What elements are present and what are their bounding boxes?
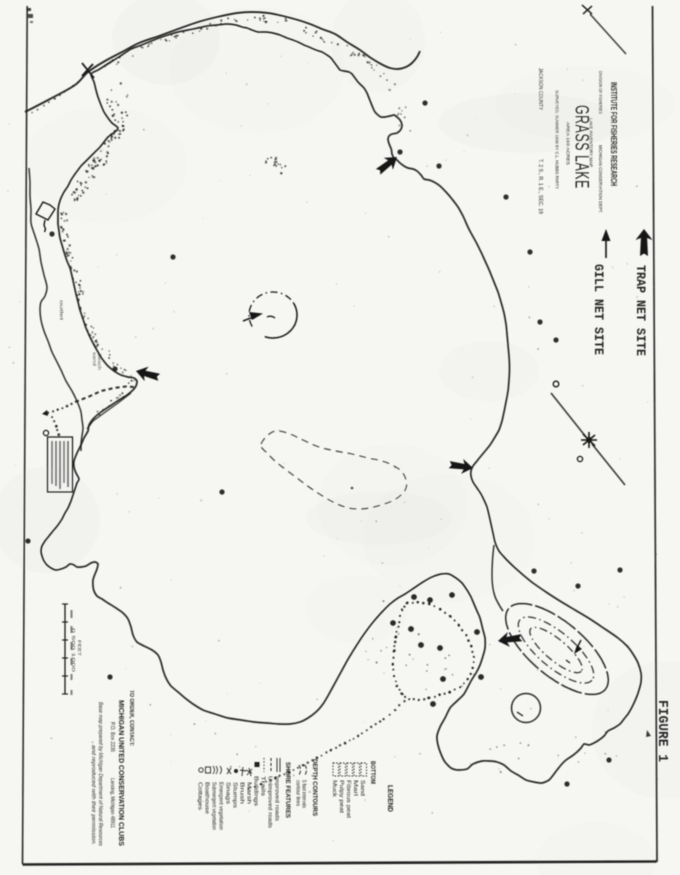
svg-text:Buildings: Buildings [252,776,258,807]
svg-text:Boathouse: Boathouse [203,782,209,814]
svg-text:Submergent vegetation: Submergent vegetation [210,782,216,830]
svg-text:Marsh: Marsh [245,782,251,804]
svg-text:TRAP NET SITE: TRAP NET SITE [633,265,647,356]
svg-text:Lansing, Michigan 48911: Lansing, Michigan 48911 [109,778,115,828]
svg-text:Marl: Marl [352,780,358,796]
svg-text:TO ORDER, CONTACT:: TO ORDER, CONTACT: [128,690,134,746]
svg-text:Muck: Muck [331,780,337,797]
svg-text:GILL NET SITE: GILL NET SITE [591,264,605,355]
svg-text:Trails: Trails [259,776,265,797]
svg-text:and reproduced with their perm: and reproduced with their permission. [90,745,96,845]
svg-text:Unimproved roads: Unimproved roads [266,776,272,828]
svg-text:Pulpy peat: Pulpy peat [338,780,344,814]
svg-text:contour lines: contour lines [294,780,300,806]
svg-text:0 500 1000: 0 500 1000 [71,628,76,673]
svg-text:MICHIGAN CONSERVATION DEPT.: MICHIGAN CONSERVATION DEPT. [598,145,603,213]
svg-text:BOTTOM: BOTTOM [369,761,376,784]
svg-text:DEPTH CONTOURS: DEPTH CONTOURS [311,759,318,816]
svg-text:T. 2 S., R. 1 E., SEC. 19: T. 2 S., R. 1 E., SEC. 19 [537,159,543,214]
svg-text:Emergent vegetation: Emergent vegetation [217,782,223,830]
svg-text:Snags: Snags [224,782,230,805]
svg-text:MICHIGAN UNITED CONSERVATION C: MICHIGAN UNITED CONSERVATION CLUBS [117,700,124,846]
svg-text:Fibrous peat: Fibrous peat [345,780,351,819]
svg-text:Improved roads: Improved roads [273,776,279,822]
svg-text:outlet: outlet [59,300,64,322]
svg-text:Stumps: Stumps [231,782,237,809]
svg-text:SHORE FEATURES: SHORE FEATURES [284,762,291,818]
svg-text:FEET: FEET [77,640,82,657]
svg-text:Sand: Sand [359,780,365,796]
svg-text:sand: sand [92,352,97,367]
svg-text:Base map prepared by Michigan: Base map prepared by Michigan Department… [97,702,103,846]
svg-text:Cottages: Cottages [196,782,202,811]
svg-text:Brush: Brush [238,782,244,804]
svg-text:LEGEND: LEGEND [386,785,395,812]
svg-text:P.O. Box 2235: P.O. Box 2235 [109,722,115,752]
svg-text:beach: beach [97,354,102,371]
